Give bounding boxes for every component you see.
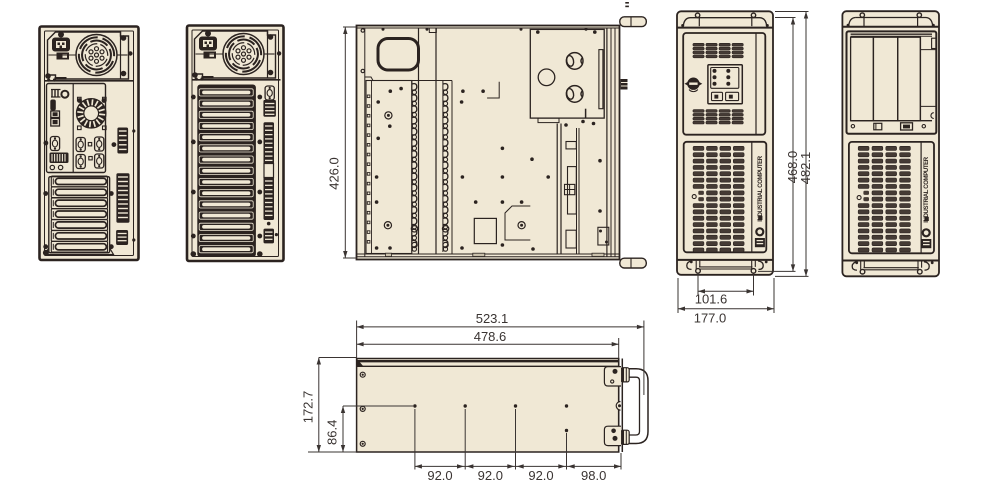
svg-text:478.6: 478.6 <box>474 329 507 344</box>
svg-text:INDUSTRIAL COMPUTER: INDUSTRIAL COMPUTER <box>924 156 930 223</box>
svg-text:482.1: 482.1 <box>798 152 813 185</box>
svg-text:86.4: 86.4 <box>325 420 340 445</box>
svg-text:177.0: 177.0 <box>694 311 727 326</box>
svg-text:INDUSTRIAL COMPUTER: INDUSTRIAL COMPUTER <box>758 155 764 222</box>
svg-text:523.1: 523.1 <box>476 311 509 326</box>
svg-text:92.0: 92.0 <box>427 468 452 483</box>
svg-text:101.6: 101.6 <box>695 292 728 307</box>
svg-text:172.7: 172.7 <box>301 391 316 424</box>
svg-text:92.0: 92.0 <box>478 468 503 483</box>
svg-text:92.0: 92.0 <box>528 468 553 483</box>
svg-text:98.0: 98.0 <box>581 468 606 483</box>
svg-text:426.0: 426.0 <box>327 157 342 190</box>
